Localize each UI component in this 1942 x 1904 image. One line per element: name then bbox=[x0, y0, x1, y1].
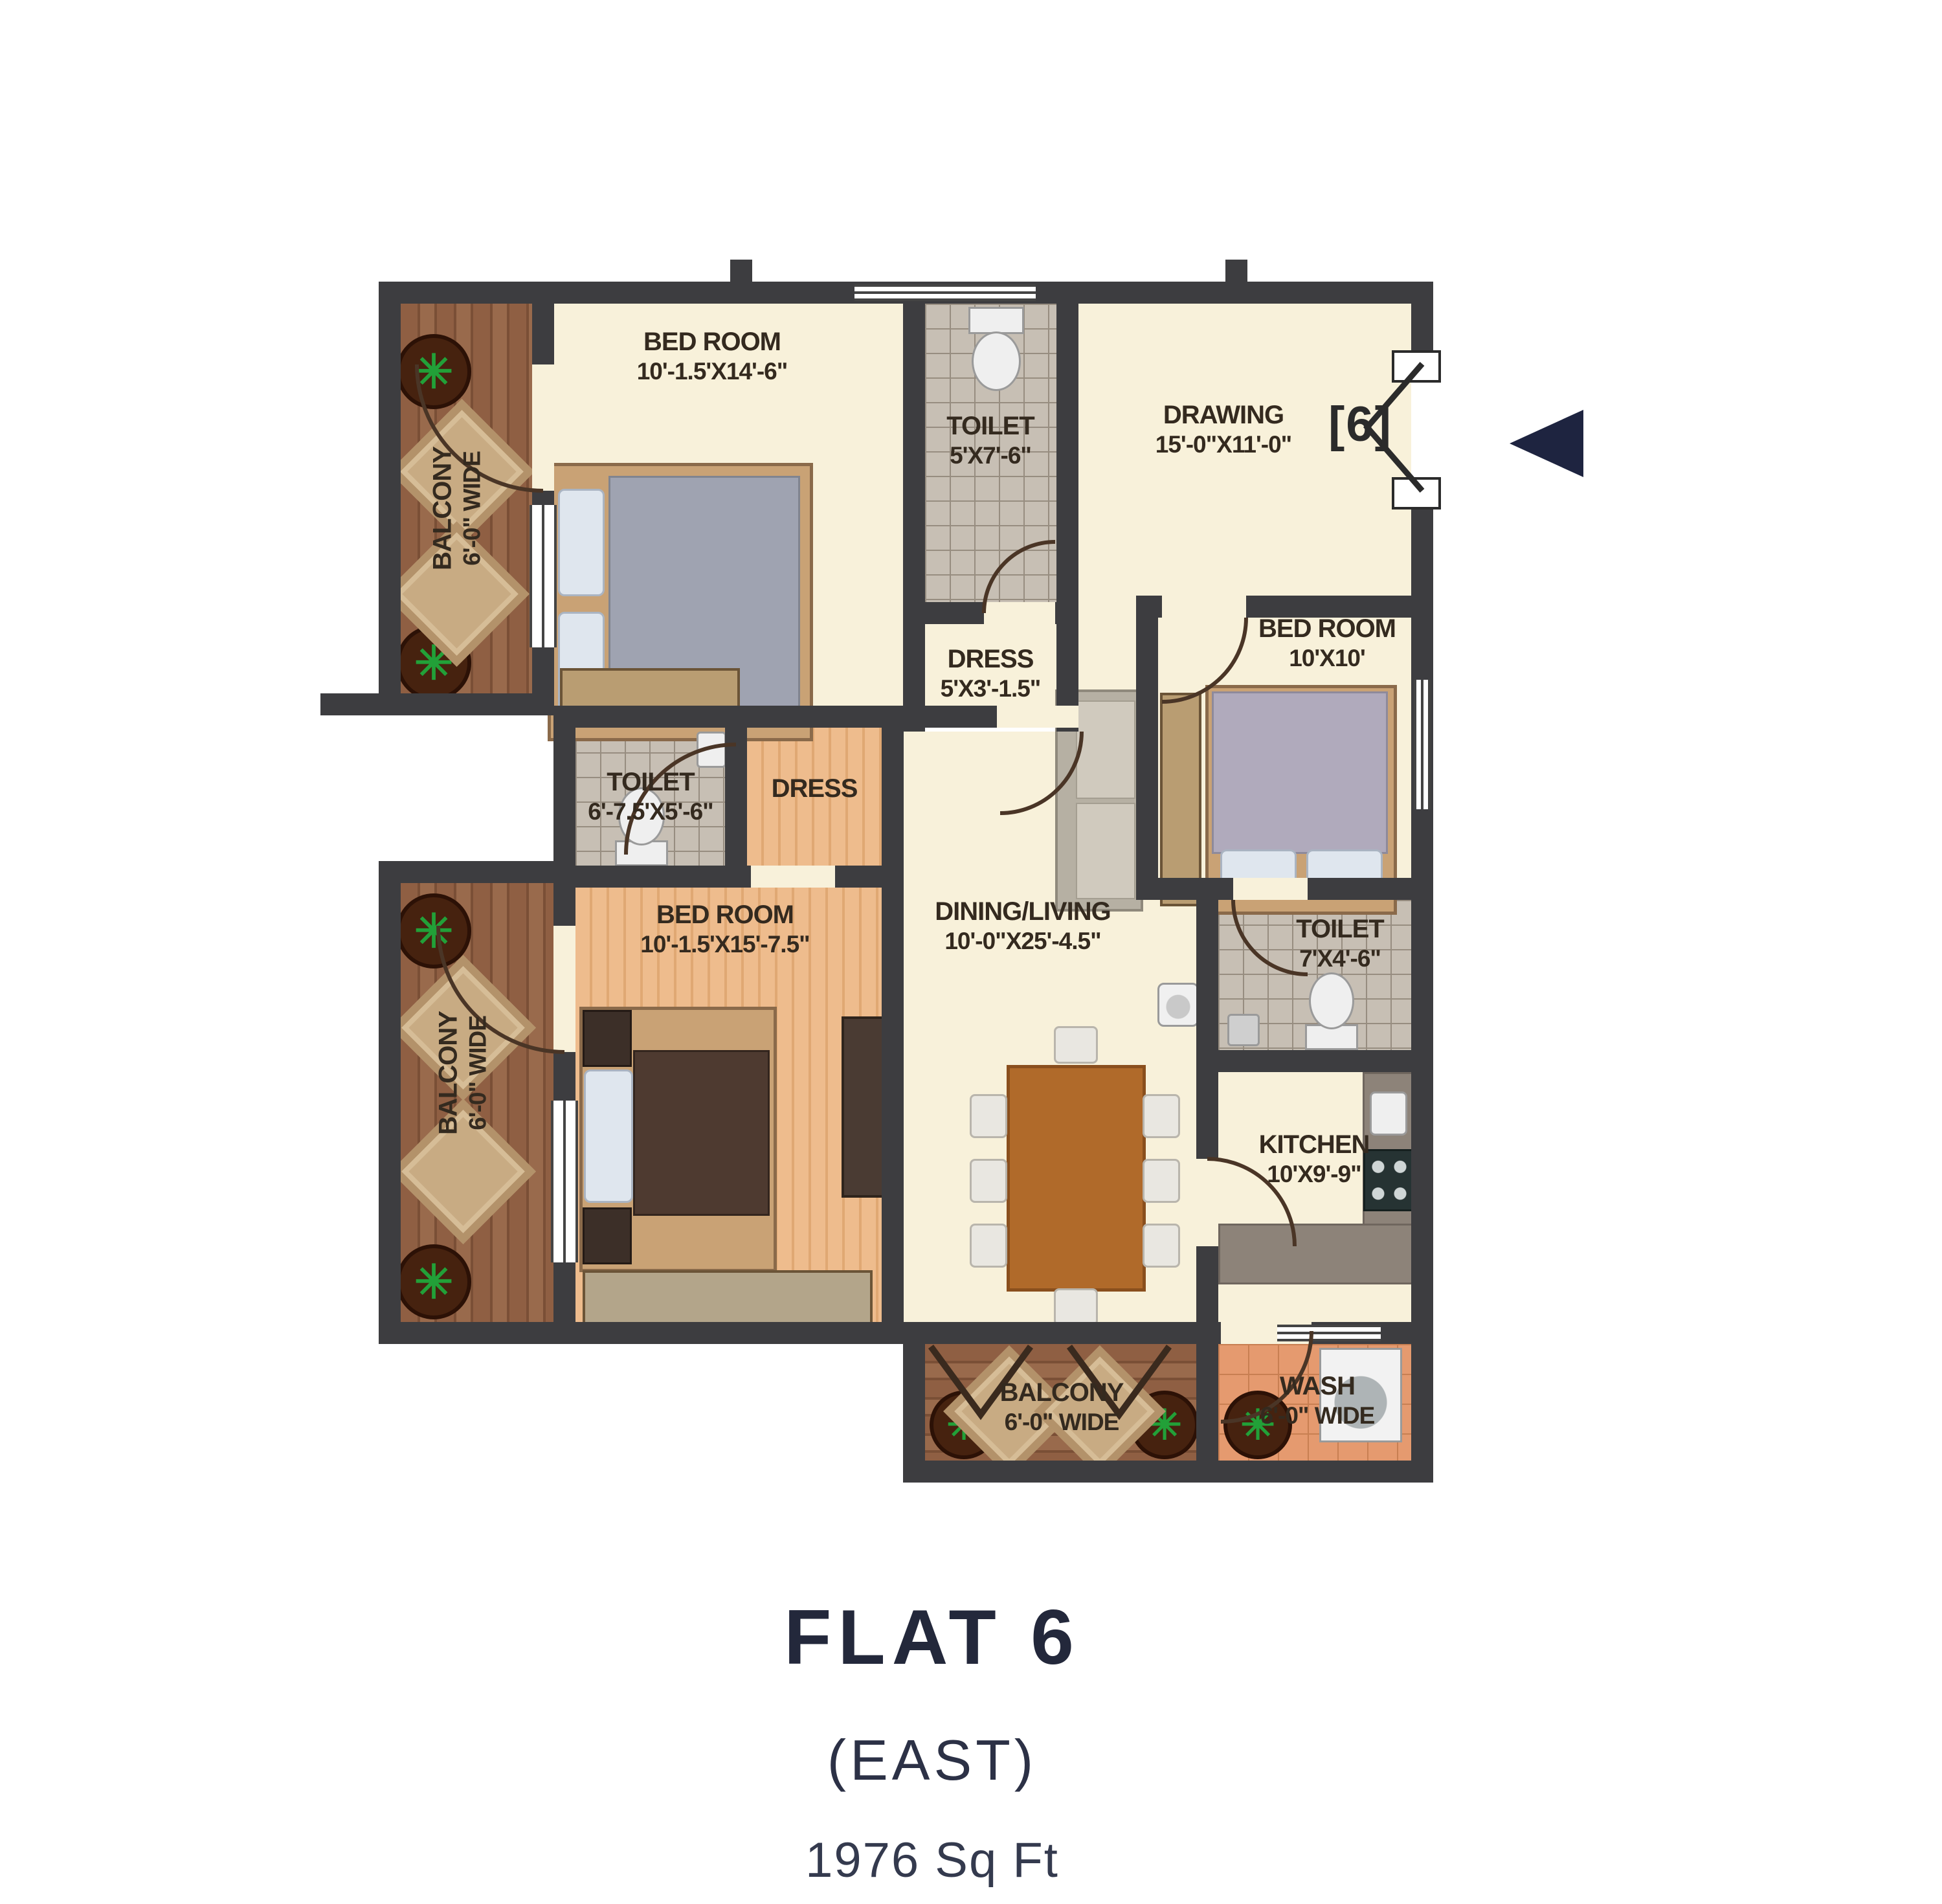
room-name: TOILET bbox=[570, 767, 731, 798]
room-name: DRESS bbox=[916, 644, 1065, 675]
entrance-direction-arrow-left-icon bbox=[1510, 410, 1583, 477]
room-label-bedroom-top: BED ROOM 10'-1.5'X14'-6" bbox=[583, 327, 842, 386]
room-dims: 6'-0" WIDE bbox=[1233, 1402, 1401, 1430]
room-name: DRESS bbox=[750, 774, 879, 804]
room-dims: 6'-0" WIDE bbox=[464, 976, 493, 1170]
room-dims: 6'-0" WIDE bbox=[945, 1408, 1178, 1437]
room-label-bedroom-right: BED ROOM 10'X10' bbox=[1211, 614, 1444, 673]
room-name: WASH bbox=[1233, 1371, 1401, 1402]
room-label-wash: WASH 6'-0" WIDE bbox=[1233, 1371, 1401, 1430]
unit-number-marker: [6] bbox=[1328, 396, 1392, 453]
room-dims: 5'X3'-1.5" bbox=[916, 675, 1065, 703]
room-label-balcony-bottom: BALCONY 6'-0" WIDE bbox=[945, 1378, 1178, 1437]
room-label-kitchen: KITCHEN 10'X9'-9" bbox=[1223, 1130, 1405, 1189]
room-label-toilet-mid: TOILET 6'-7.5'X5'-6" bbox=[570, 767, 731, 826]
floor-plan-page: { "title": { "name": "FLAT 6", "facing":… bbox=[0, 0, 1942, 1904]
room-dims: 5'X7'-6" bbox=[926, 442, 1055, 470]
room-label-dress-mid: DRESS bbox=[750, 774, 879, 804]
room-dims: 10'-1.5'X15'-7.5" bbox=[576, 930, 874, 959]
room-label-drawing: DRAWING 15'-0"X11'-0" bbox=[1100, 400, 1346, 459]
room-label-balcony-top: BALCONY 6'-0" WIDE bbox=[428, 411, 487, 605]
room-name: BALCONY bbox=[434, 976, 464, 1170]
room-name: KITCHEN bbox=[1223, 1130, 1405, 1160]
room-dims: 10'X10' bbox=[1211, 644, 1444, 673]
room-dims: 15'-0"X11'-0" bbox=[1100, 431, 1346, 459]
flat-facing: (EAST) bbox=[608, 1727, 1256, 1793]
room-name: BALCONY bbox=[945, 1378, 1178, 1408]
room-dims: 7'X4'-6" bbox=[1259, 945, 1421, 973]
room-dims: 6'-0" WIDE bbox=[458, 411, 487, 605]
room-name: DRAWING bbox=[1100, 400, 1346, 431]
room-label-dress-top: DRESS 5'X3'-1.5" bbox=[916, 644, 1065, 703]
room-name: TOILET bbox=[926, 411, 1055, 442]
room-name: BED ROOM bbox=[576, 900, 874, 930]
room-name: TOILET bbox=[1259, 914, 1421, 945]
room-label-toilet-top: TOILET 5'X7'-6" bbox=[926, 411, 1055, 470]
room-name: BED ROOM bbox=[1211, 614, 1444, 644]
room-name: DINING/LIVING bbox=[906, 897, 1139, 927]
room-dims: 6'-7.5'X5'-6" bbox=[570, 798, 731, 826]
flat-title: FLAT 6 bbox=[608, 1593, 1256, 1682]
room-name: BED ROOM bbox=[583, 327, 842, 357]
room-label-toilet-right: TOILET 7'X4'-6" bbox=[1259, 914, 1421, 973]
room-dims: 10'-0"X25'-4.5" bbox=[906, 927, 1139, 956]
room-dims: 10'-1.5'X14'-6" bbox=[583, 357, 842, 386]
title-block: FLAT 6 (EAST) 1976 Sq Ft bbox=[608, 1593, 1256, 1888]
room-label-dining-living: DINING/LIVING 10'-0"X25'-4.5" bbox=[906, 897, 1139, 956]
flat-area: 1976 Sq Ft bbox=[608, 1832, 1256, 1888]
room-dims: 10'X9'-9" bbox=[1223, 1160, 1405, 1189]
room-label-bedroom-left: BED ROOM 10'-1.5'X15'-7.5" bbox=[576, 900, 874, 959]
room-label-balcony-left: BALCONY 6'-0" WIDE bbox=[434, 976, 493, 1170]
room-name: BALCONY bbox=[428, 411, 458, 605]
